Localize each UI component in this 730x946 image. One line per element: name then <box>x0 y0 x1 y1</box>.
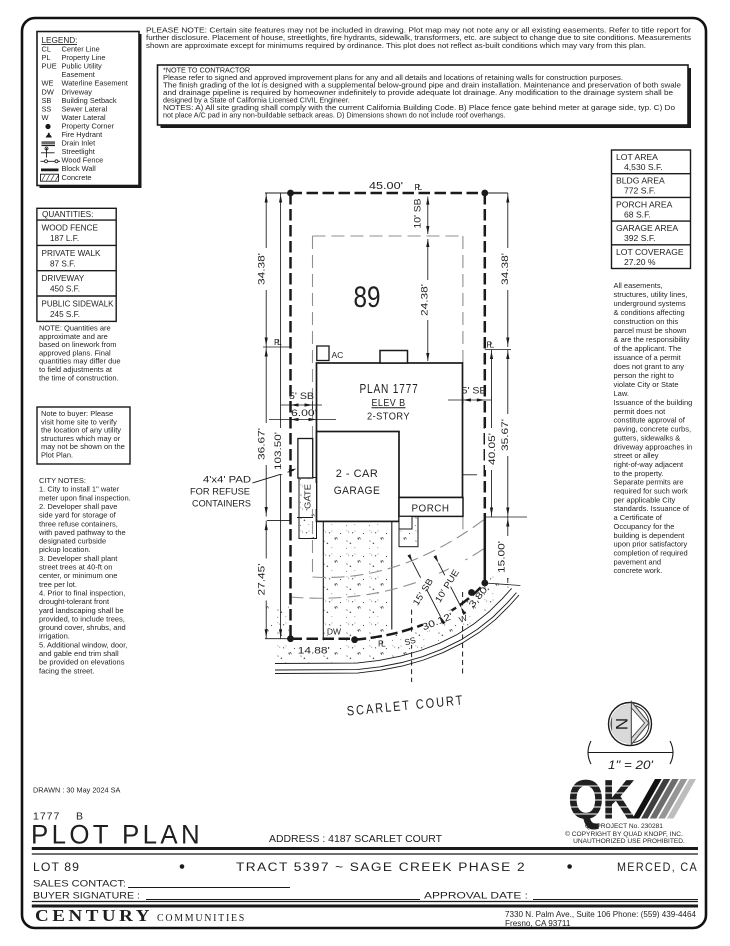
svg-text:upon prior satisfactory: upon prior satisfactory <box>614 540 688 549</box>
svg-text:WOOD FENCE: WOOD FENCE <box>42 224 99 233</box>
svg-text:paving, concrete curbs,: paving, concrete curbs, <box>614 425 692 434</box>
svg-text:Issuance of the building: Issuance of the building <box>614 398 693 407</box>
svg-text:1. City to install 1" water: 1. City to install 1" water <box>39 485 120 494</box>
svg-text:building is dependent: building is dependent <box>614 531 686 540</box>
svg-text:Plot Plan.: Plot Plan. <box>41 451 73 460</box>
svg-text:provided, to include trees,: provided, to include trees, <box>39 614 125 623</box>
svg-text:87 S.F.: 87 S.F. <box>50 259 76 268</box>
svg-text:LOT COVERAGE: LOT COVERAGE <box>616 247 684 257</box>
svg-text:required for such work: required for such work <box>614 487 688 496</box>
svg-text:187 L.F.: 187 L.F. <box>50 234 79 243</box>
svg-text:2. Developer shall pave: 2. Developer shall pave <box>39 502 117 511</box>
svg-text:772 S.F.: 772 S.F. <box>624 186 656 196</box>
svg-text:BUYER SIGNATURE :: BUYER SIGNATURE : <box>33 891 140 901</box>
svg-text:completion of required: completion of required <box>614 548 688 557</box>
svg-text:GARAGE AREA: GARAGE AREA <box>616 223 678 233</box>
svg-text:10' SB: 10' SB <box>413 199 423 229</box>
svg-text:COMMUNITIES: COMMUNITIES <box>157 913 246 924</box>
svg-text:MERCED, CA: MERCED, CA <box>617 860 698 874</box>
svg-text:5' SB: 5' SB <box>289 391 314 401</box>
svg-text:drought-tolerant front: drought-tolerant front <box>39 597 110 606</box>
svg-text:2-STORY: 2-STORY <box>367 411 410 423</box>
svg-text:pavement and: pavement and <box>614 557 662 566</box>
svg-text:to the property.: to the property. <box>614 469 664 478</box>
svg-text:tree per lot.: tree per lot. <box>39 580 77 589</box>
svg-text:GATE: GATE <box>303 484 313 509</box>
svg-text:PUBLIC SIDEWALK: PUBLIC SIDEWALK <box>42 300 115 309</box>
svg-text:person the right to: person the right to <box>614 371 674 380</box>
svg-text:3. Developer shall plant: 3. Developer shall plant <box>39 554 118 563</box>
svg-text:CITY NOTES:: CITY NOTES: <box>39 476 86 485</box>
svg-text:Fresno, CA 93711: Fresno, CA 93711 <box>505 919 571 928</box>
svg-text:three refuse containers,: three refuse containers, <box>39 519 118 528</box>
svg-text:35.67': 35.67' <box>500 419 511 451</box>
svg-text:designated curbside: designated curbside <box>39 537 106 546</box>
svg-text:structures, utility lines,: structures, utility lines, <box>614 290 688 299</box>
svg-text:W: W <box>42 113 49 122</box>
svg-text:GARAGE: GARAGE <box>334 485 381 497</box>
svg-text:the time of construction.: the time of construction. <box>39 373 119 382</box>
svg-text:4'x4' PAD: 4'x4' PAD <box>203 475 252 485</box>
svg-text:facing the street.: facing the street. <box>39 666 94 675</box>
svg-text:parcel must be shown: parcel must be shown <box>614 326 687 335</box>
svg-text:construction on this: construction on this <box>614 317 679 326</box>
svg-text:constitute approval of: constitute approval of <box>614 416 686 425</box>
svg-text:& are the responsibility: & are the responsibility <box>614 335 690 344</box>
svg-text:L: L <box>277 337 282 347</box>
svg-text:does not grant to any: does not grant to any <box>614 362 685 371</box>
svg-text:ELEV B: ELEV B <box>372 397 406 409</box>
svg-text:27.45': 27.45' <box>257 563 268 595</box>
svg-text:PRIVATE WALK: PRIVATE WALK <box>42 249 102 258</box>
svg-text:& conditions affecting: & conditions affecting <box>614 308 685 317</box>
svg-text:LOT 89: LOT 89 <box>33 862 80 874</box>
svg-text:permit does not: permit does not <box>614 407 667 416</box>
svg-text:gutters, sidewalks &: gutters, sidewalks & <box>614 433 681 442</box>
svg-text:N: N <box>613 718 632 730</box>
svg-text:Occupancy for the: Occupancy for the <box>614 522 675 531</box>
svg-text:14.88': 14.88' <box>298 646 330 657</box>
svg-text:© COPYRIGHT BY QUAD KNOPF, I: © COPYRIGHT BY QUAD KNOPF, INC. <box>565 830 683 838</box>
svg-text:ground cover, shrubs, and: ground cover, shrubs, and <box>39 623 126 632</box>
svg-text:24.38': 24.38' <box>420 284 431 316</box>
svg-text:PLOT PLAN: PLOT PLAN <box>31 820 203 850</box>
svg-text:DW: DW <box>327 627 341 637</box>
svg-text:per applicable City: per applicable City <box>614 495 676 504</box>
svg-text:street trees at 40-ft on: street trees at 40-ft on <box>39 563 112 572</box>
svg-text:yard landscaping shall be: yard landscaping shall be <box>39 606 124 615</box>
svg-text:27.20 %: 27.20 % <box>624 257 656 267</box>
svg-text:103.50': 103.50' <box>273 432 284 470</box>
svg-text:pickup location.: pickup location. <box>39 545 91 554</box>
svg-text:Law.: Law. <box>614 389 629 398</box>
svg-text:LOT AREA: LOT AREA <box>616 152 658 162</box>
svg-text:be provided on elevations: be provided on elevations <box>39 658 125 667</box>
svg-text:not place A/C pad in any non-b: not place A/C pad in any non-buildable s… <box>163 111 505 120</box>
svg-text:irrigation.: irrigation. <box>39 632 70 641</box>
svg-text:BLDG AREA: BLDG AREA <box>616 176 665 186</box>
svg-text:and gable end trim shall: and gable end trim shall <box>39 649 119 658</box>
svg-text:QK PROJECT No. 230281: QK PROJECT No. 230281 <box>585 823 663 830</box>
svg-text:All easements,: All easements, <box>614 281 663 290</box>
svg-text:245 S.F.: 245 S.F. <box>50 310 80 319</box>
svg-text:concrete work.: concrete work. <box>614 566 663 575</box>
svg-text:standards. Issuance of: standards. Issuance of <box>614 504 690 513</box>
svg-text:5. Additional window, door,: 5. Additional window, door, <box>39 640 127 649</box>
svg-text:of the applicant. The: of the applicant. The <box>614 344 682 353</box>
svg-text:right-of-way adjacent: right-of-way adjacent <box>614 460 685 469</box>
svg-text:DRAWN : 30 May 2024 SA: DRAWN : 30 May 2024 SA <box>33 786 120 795</box>
svg-text:with paved pathway to the: with paved pathway to the <box>38 528 126 537</box>
svg-text:6.00': 6.00' <box>291 408 317 419</box>
svg-text:QUANTITIES:: QUANTITIES: <box>42 210 93 219</box>
svg-text:street or alley: street or alley <box>614 451 659 460</box>
svg-text:5' SB: 5' SB <box>462 386 487 396</box>
svg-text:SALES CONTACT:: SALES CONTACT: <box>33 879 126 889</box>
svg-text:TRACT 5397 ~ SAGE CREEK PHASE: TRACT 5397 ~ SAGE CREEK PHASE 2 <box>236 862 526 874</box>
svg-text:meter upon final inspection.: meter upon final inspection. <box>39 493 131 502</box>
svg-text:DRIVEWAY: DRIVEWAY <box>42 274 85 283</box>
svg-text:40.05': 40.05' <box>487 433 498 465</box>
svg-text:shown are approximate except f: shown are approximate except for minimum… <box>146 41 646 50</box>
svg-text:issuance of a permit: issuance of a permit <box>614 353 682 362</box>
svg-text:7330 N. Palm Ave., Suite 106: 7330 N. Palm Ave., Suite 106 Phone: (559… <box>505 910 696 919</box>
svg-text:underground systems: underground systems <box>614 299 686 308</box>
svg-text:side yard for storage of: side yard for storage of <box>39 511 117 520</box>
svg-text:36.67': 36.67' <box>257 428 268 460</box>
svg-text:4,530 S.F.: 4,530 S.F. <box>624 162 663 172</box>
svg-text:CENTURY: CENTURY <box>35 906 153 925</box>
svg-text:a Certificate of: a Certificate of <box>614 513 663 522</box>
svg-text:15.00': 15.00' <box>497 541 508 573</box>
svg-text:68 S.F.: 68 S.F. <box>624 209 651 219</box>
svg-text:APPROVAL DATE :: APPROVAL DATE : <box>424 891 528 901</box>
svg-text:Separate permits are: Separate permits are <box>614 478 684 487</box>
svg-text:45.00': 45.00' <box>369 181 403 192</box>
svg-text:Concrete: Concrete <box>62 173 92 182</box>
svg-text:4. Prior to final inspection,: 4. Prior to final inspection, <box>39 588 125 597</box>
svg-text:FOR REFUSE: FOR REFUSE <box>190 487 250 497</box>
svg-text:AC: AC <box>332 350 344 360</box>
svg-text:L: L <box>490 340 495 350</box>
svg-text:34.38': 34.38' <box>500 253 511 285</box>
svg-text:violate City or State: violate City or State <box>614 380 679 389</box>
svg-text:ADDRESS : 4187 SCARLET COURT: ADDRESS : 4187 SCARLET COURT <box>269 834 442 845</box>
svg-text:2 - CAR: 2 - CAR <box>336 468 379 480</box>
svg-text:PLAN 1777: PLAN 1777 <box>360 382 419 396</box>
svg-text:392 S.F.: 392 S.F. <box>624 233 656 243</box>
svg-text:PORCH: PORCH <box>412 504 450 515</box>
svg-text:L: L <box>418 182 423 192</box>
svg-text:L: L <box>381 639 386 649</box>
svg-text:PUE: PUE <box>42 62 57 71</box>
svg-text:34.38': 34.38' <box>257 253 268 285</box>
svg-text:PORCH AREA: PORCH AREA <box>616 199 673 209</box>
svg-text:450 S.F.: 450 S.F. <box>50 285 80 294</box>
svg-text:center, or minimum one: center, or minimum one <box>39 571 117 580</box>
svg-text:CONTAINERS: CONTAINERS <box>192 499 251 509</box>
svg-text:89: 89 <box>354 281 381 314</box>
svg-text:QK: QK <box>568 767 635 830</box>
svg-text:driveway approaches in: driveway approaches in <box>614 442 693 451</box>
svg-text:UNAUTHORIZED USE PROHIBITED.: UNAUTHORIZED USE PROHIBITED. <box>573 838 685 845</box>
